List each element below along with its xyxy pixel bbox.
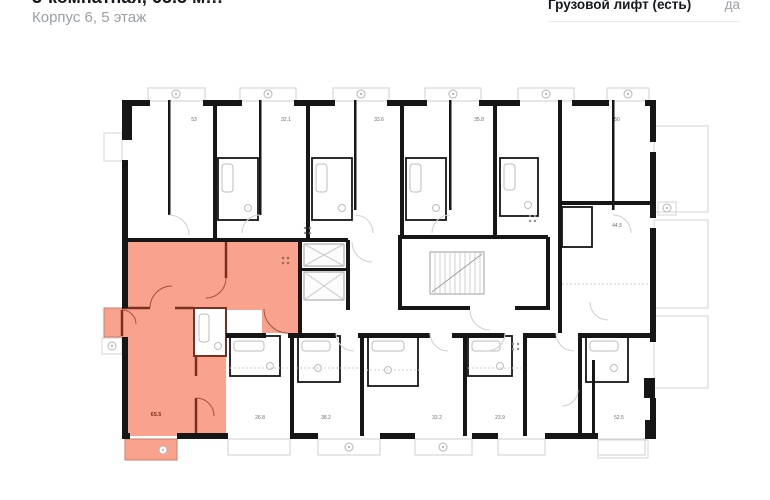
room-label: 44.5 — [612, 223, 622, 229]
room-label: 38.2 — [321, 415, 331, 421]
room-label: 52.5 — [614, 415, 624, 421]
windows-bottom — [228, 439, 645, 455]
page-title: 3-комнатная, 65.5 м… — [32, 0, 452, 7]
windows-top — [148, 88, 649, 101]
room-label: 33.2 — [432, 415, 442, 421]
floor-plan-svg: 65.5 — [0, 55, 770, 500]
spec-divider — [548, 21, 740, 22]
floor-plan: 65.5 — [0, 55, 770, 500]
room-label: 53 — [191, 117, 197, 123]
room-label: 26.8 — [255, 415, 265, 421]
highlighted-flat[interactable]: 65.5 — [104, 242, 298, 460]
room-label: 32.1 — [281, 117, 291, 123]
room-label: 35.8 — [474, 117, 484, 123]
header-left: 3-комнатная, 65.5 м… Корпус 6, 5 этаж — [32, 0, 452, 28]
highlighted-flat-area-label: 65.5 — [151, 412, 162, 418]
elevator-shafts — [304, 244, 344, 300]
floor-plan-page: 3-комнатная, 65.5 м… Корпус 6, 5 этаж Гр… — [0, 0, 770, 500]
flat-balcony-bottom — [125, 439, 177, 460]
room-label: 50 — [614, 117, 620, 123]
spec-label: Грузовой лифт (есть) — [548, 0, 691, 12]
stairs — [430, 252, 484, 294]
spec-row-freight-elevator: Грузовой лифт (есть) да — [548, 0, 740, 12]
flat-balcony-left — [104, 308, 122, 337]
spec-value: да — [725, 0, 740, 12]
spec-panel: Грузовой лифт (есть) да — [548, 0, 740, 22]
room-label: 23.9 — [495, 415, 505, 421]
building-floor-subtitle: Корпус 6, 5 этаж — [32, 8, 452, 28]
room-label: 33.6 — [374, 117, 384, 123]
